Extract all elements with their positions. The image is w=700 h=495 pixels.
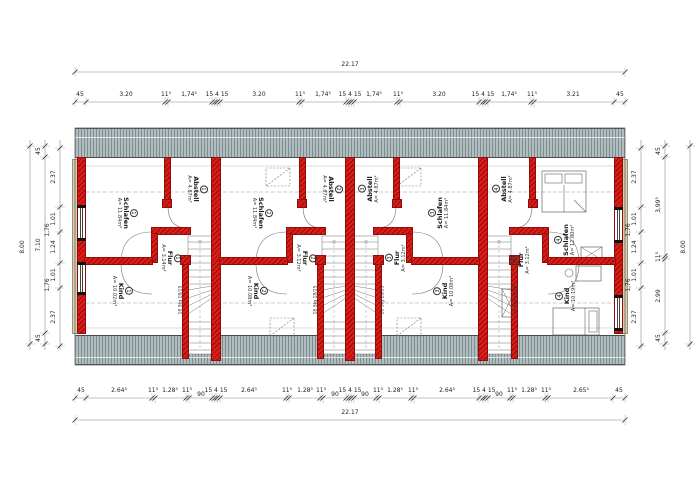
dim-label-bottom: 45 [615,388,623,394]
dim-label-top: 15 4 15 [472,92,495,98]
dim-label-right: 11⁵ [656,252,662,262]
room-area: A= 3.12m² [295,244,300,271]
room-area: A= 10.08m² [246,276,251,306]
room-label-schlafen: 1SchlafenA= 11.84m² [116,197,138,229]
dim-label-bottom: 1.28⁵ [521,388,537,394]
room-name: Abstell [367,176,374,202]
unit-number-badge: 4 [492,185,500,193]
dim-label-bottom: 11⁵ [507,388,517,394]
room-label-kind: 3KindA= 10.08m² [433,276,455,306]
room-area: A= 11.84m² [445,198,450,228]
unit-number-badge: 1 [174,254,182,262]
dim-label-bottom: 11⁵ [182,388,192,394]
dim-label-bottom: 1.28⁵ [387,388,403,394]
dim-label-left: 45 [36,147,42,155]
room-area: A= 4.87m² [375,175,380,202]
room-area: A= 11.84m² [251,198,256,228]
dim-label-left-window: 1,76 [45,278,51,291]
unit-number-badge: 4 [555,292,563,300]
room-name: Abstell [327,176,334,202]
room-area: A= 10.02m² [111,276,116,306]
dim-label-right: 1.24 [632,240,638,253]
dim-label-bottom: 90 [361,392,369,398]
room-name: Schlafen [122,197,129,229]
dim-label-bottom: 11⁵ [148,388,158,394]
dim-label-bottom: 15 4 15 [339,388,362,394]
dim-label-bottom: 11⁵ [373,388,383,394]
dim-label-top: 45 [76,92,84,98]
dim-label-bottom: 2.64⁵ [111,388,127,394]
room-name: Schlafen [563,224,570,256]
room-area: A= 11.84m² [116,198,121,228]
dim-label-right: 45 [656,147,662,155]
dim-label-right: 2.99 [656,289,662,302]
room-name: Kind [442,283,449,300]
room-label-schlafen: 3SchlafenA= 11.84m² [428,197,450,229]
dim-label-right: 1.01 [632,212,638,225]
unit-number-badge: 3 [358,185,366,193]
dim-label-top: 15 4 15 [206,92,229,98]
dim-label-bottom: 2.64⁵ [241,388,257,394]
dim-label-left: 1.01 [51,212,57,225]
unit-number-badge: 2 [309,254,317,262]
dim-label-top: 1,74⁵ [366,92,382,98]
dim-label-left: 1.24 [51,240,57,253]
dim-label-top: 11⁵ [527,92,537,98]
dim-label-bottom: 15 4 15 [205,388,228,394]
dim-label-left: 45 [36,334,42,342]
room-label-kind: 1KindA= 10.02m² [111,276,133,306]
room-area: A= 3.12m² [526,246,531,273]
room-name: Flur [301,251,308,266]
unit-number-badge: 4 [554,236,562,244]
stair-note: 18 Stg 18/25 [314,285,319,314]
unit-number-badge: 3 [433,287,441,295]
dim-total-right: 8.00 [681,240,687,253]
unit-number-badge: 2 [260,287,268,295]
dim-label-right: 2.37 [632,170,638,183]
dim-label-top: 3.20 [119,92,132,98]
stair-note: 18 Stg 18/25 [381,285,386,314]
dim-label-bottom: 11⁵ [316,388,326,394]
unit-number-badge: 1 [130,209,138,217]
stair-note: 18 Stg 18/25 [514,285,519,314]
dim-label-bottom: 11⁵ [282,388,292,394]
dim-label-left: 7.10 [36,238,42,251]
dim-label-bottom: 45 [77,388,85,394]
room-label-flur: 1FlurA= 3.14m² [160,244,182,271]
room-area: A= 4.87m² [509,175,514,202]
dim-label-top: 3.21 [566,92,579,98]
unit-number-badge: 3 [428,209,436,217]
dim-label-top: 1,74⁵ [501,92,517,98]
room-label-abstell: 1AbstellA= 4.87m² [186,175,208,202]
room-name: Flur [518,253,525,268]
dim-label-top: 45 [616,92,624,98]
dim-label-top: 1,74⁵ [315,92,331,98]
dim-label-bottom: 11⁵ [408,388,418,394]
room-name: Schlafen [437,197,444,229]
dim-label-right: 3,99⁵ [656,197,662,213]
unit-number-badge: 1 [125,287,133,295]
room-name: Flur [394,251,401,266]
dim-label-left: 1.01 [51,268,57,281]
room-area: A= 10.08m² [450,276,455,306]
room-name: Kind [117,283,124,300]
room-label-abstell: 3AbstellA= 4.87m² [358,175,380,202]
dim-label-bottom: 90 [495,392,503,398]
room-area: A= 10.19m² [572,281,577,311]
dim-label-right-window: 1,76 [626,278,632,291]
dim-label-right: 45 [656,334,662,342]
dim-label-left-window: 1,76 [45,223,51,236]
dim-label-bottom: 11⁵ [541,388,551,394]
dim-label-bottom: 2.64⁵ [439,388,455,394]
room-label-kind: 2KindA= 10.08m² [246,276,268,306]
dim-label-left: 2.37 [51,170,57,183]
dim-label-bottom: 15 4 15 [473,388,496,394]
room-label-schlafen: 4SchlafenA= 12.80m² [554,224,576,256]
dim-label-bottom: 1.28⁵ [297,388,313,394]
room-area: A= 12.80m² [571,225,576,255]
floor-plan-drawing: 22.17453.2011⁵1,74⁵15 4 153.2011⁵1,74⁵15… [0,0,700,495]
unit-number-badge: 2 [265,209,273,217]
dim-label-top: 11⁵ [161,92,171,98]
unit-number-badge: 4 [509,256,517,264]
dim-label-right: 1.01 [632,268,638,281]
room-label-kind: 4KindA= 10.19m² [555,281,577,311]
room-label-abstell: 2AbstellA= 4.87m² [321,175,343,202]
unit-number-badge: 1 [200,185,208,193]
stair-note: 18 Stg 18/25 [179,285,184,314]
room-label-flur: 2FlurA= 3.12m² [295,244,317,271]
dim-total-left: 8.00 [20,240,26,253]
room-name: Abstell [192,176,199,202]
room-name: Abstell [501,176,508,202]
room-name: Kind [252,283,259,300]
room-name: Kind [564,288,571,305]
dim-label-top: 3.20 [432,92,445,98]
dim-total-top: 22.17 [341,62,358,68]
dim-label-top: 11⁵ [393,92,403,98]
room-label-flur: 3FlurA= 3.12m² [385,244,407,271]
room-label-flur: 4FlurA= 3.12m² [509,246,531,273]
dim-label-right-window: 1,76 [626,223,632,236]
dim-label-bottom: 1.28⁵ [162,388,178,394]
room-area: A= 4.87m² [321,175,326,202]
room-area: A= 3.14m² [160,244,165,271]
dim-label-top: 15 4 15 [339,92,362,98]
dim-label-top: 3.20 [252,92,265,98]
room-name: Flur [166,251,173,266]
dim-label-right: 2.37 [632,310,638,323]
dim-total-bottom: 22.17 [341,410,358,416]
room-label-abstell: 4AbstellA= 4.87m² [492,175,514,202]
dim-label-top: 11⁵ [295,92,305,98]
room-label-schlafen: 2SchlafenA= 11.84m² [251,197,273,229]
unit-number-badge: 2 [335,185,343,193]
room-area: A= 4.87m² [186,175,191,202]
dim-label-left: 2.37 [51,310,57,323]
unit-number-badge: 3 [385,254,393,262]
dim-label-bottom: 2.65⁵ [573,388,589,394]
room-name: Schlafen [257,197,264,229]
labels-layer: 22.17453.2011⁵1,74⁵15 4 153.2011⁵1,74⁵15… [0,0,700,495]
room-area: A= 3.12m² [402,244,407,271]
dim-label-top: 1,74⁵ [181,92,197,98]
